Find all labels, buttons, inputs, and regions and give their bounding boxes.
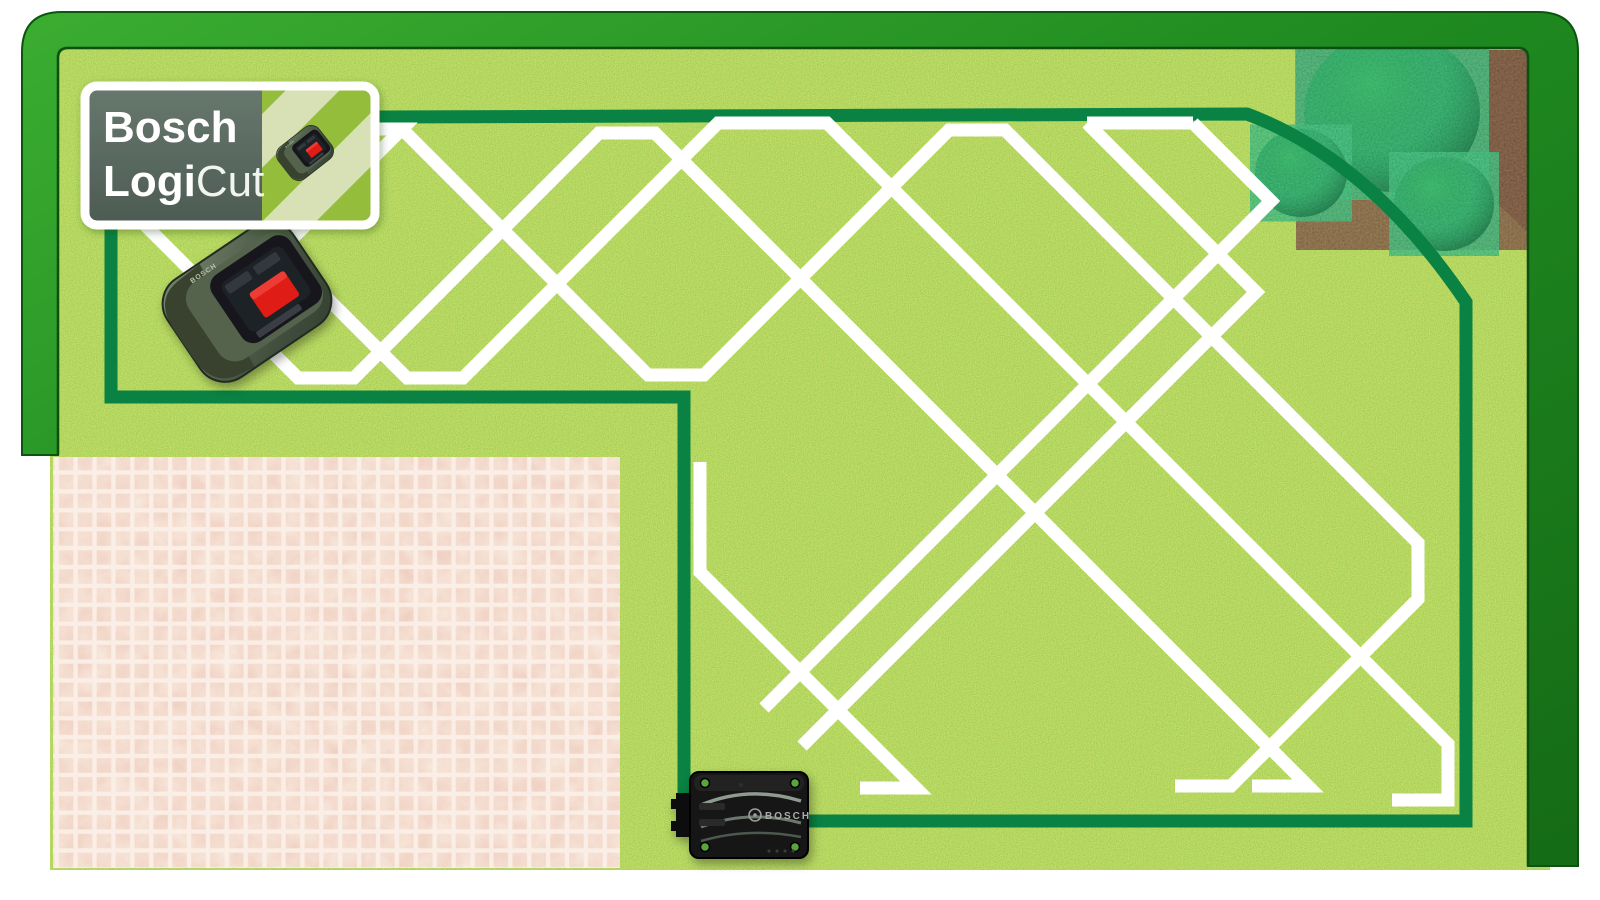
patio-tiles bbox=[53, 457, 620, 868]
patio bbox=[53, 457, 620, 868]
badge-brand-text: Bosch bbox=[103, 103, 237, 152]
station-brand-label: BOSCH bbox=[765, 811, 811, 822]
logicut-illustration: BOSCH bbox=[0, 0, 1600, 900]
lawn-scene: BOSCH bbox=[0, 0, 1600, 900]
charging-station: BOSCH bbox=[671, 772, 811, 858]
badge-product-light: Cut bbox=[196, 157, 264, 206]
badge-product-text: LogiCut bbox=[103, 157, 264, 206]
badge-product-bold: Logi bbox=[103, 157, 196, 206]
logicut-badge: Bosch LogiCut bbox=[85, 86, 375, 225]
